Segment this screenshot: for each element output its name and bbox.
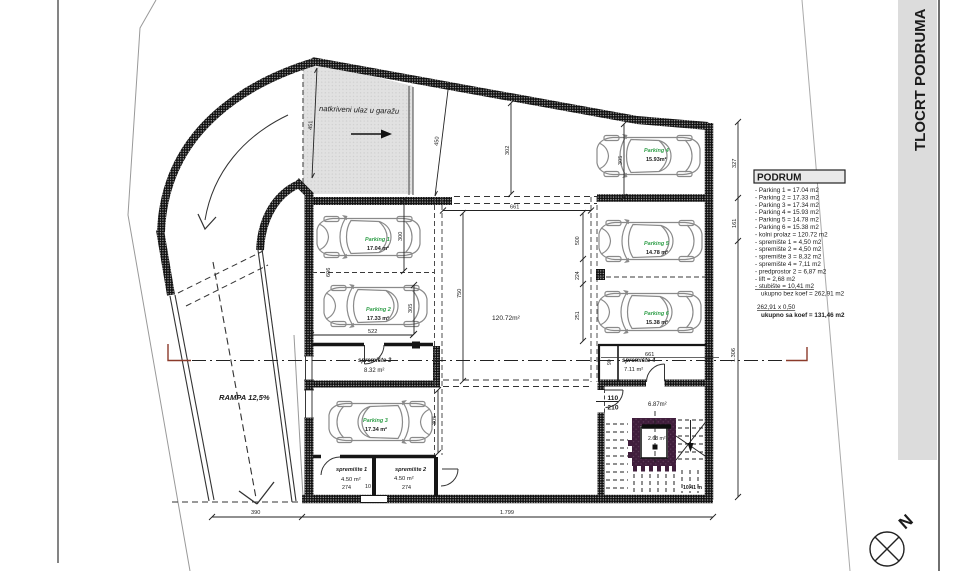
svg-text:305: 305 <box>408 304 414 313</box>
svg-text:Parking 5: Parking 5 <box>644 241 670 247</box>
svg-text:spremište 2: spremište 2 <box>395 467 427 473</box>
svg-text:17.34 m²: 17.34 m² <box>365 426 387 433</box>
svg-text:Parking 1: Parking 1 <box>365 237 390 243</box>
svg-text:PODRUM: PODRUM <box>757 173 801 184</box>
svg-text:- spremište 4 = 7,11 m2: - spremište 4 = 7,11 m2 <box>755 261 821 268</box>
svg-text:262,91 x 0,50: 262,91 x 0,50 <box>757 304 796 311</box>
svg-text:2.68 m²: 2.68 m² <box>648 436 666 442</box>
svg-text:251: 251 <box>575 311 581 320</box>
svg-text:274: 274 <box>402 485 411 491</box>
svg-text:7.11 m²: 7.11 m² <box>624 367 643 373</box>
svg-text:Parking 6: Parking 6 <box>644 311 670 317</box>
svg-text:spremište 1: spremište 1 <box>336 467 367 473</box>
svg-text:8.32 m²: 8.32 m² <box>364 368 384 374</box>
svg-text:4.50 m²: 4.50 m² <box>394 476 414 482</box>
svg-text:451: 451 <box>308 121 314 131</box>
svg-text:305: 305 <box>432 416 438 425</box>
svg-text:1.306: 1.306 <box>731 348 737 362</box>
svg-text:110: 110 <box>608 395 619 402</box>
svg-text:15.93m²: 15.93m² <box>646 156 667 163</box>
svg-text:Parking 2: Parking 2 <box>366 307 391 313</box>
svg-text:- stubište = 10,41 m2: - stubište = 10,41 m2 <box>755 283 814 290</box>
svg-text:- kolni prolaz = 120.72 m2: - kolni prolaz = 120.72 m2 <box>755 231 828 238</box>
svg-text:- spremište 3 = 8,32 m2: - spremište 3 = 8,32 m2 <box>755 254 822 261</box>
svg-text:750: 750 <box>457 289 463 298</box>
svg-text:TLOCRT PODRUMA: TLOCRT PODRUMA <box>912 8 929 151</box>
svg-text:17.04 m²: 17.04 m² <box>367 245 389 252</box>
svg-text:- lift = 2,68 m2: - lift = 2,68 m2 <box>755 276 796 283</box>
svg-text:661: 661 <box>510 205 519 211</box>
svg-text:- Parking 3 = 17.34 m2: - Parking 3 = 17.34 m2 <box>755 202 819 209</box>
svg-text:522: 522 <box>368 329 377 335</box>
svg-text:- Parking 2 = 17.33 m2: - Parking 2 = 17.33 m2 <box>755 194 819 201</box>
svg-text:161: 161 <box>732 219 738 228</box>
svg-text:4.50 m²: 4.50 m² <box>341 477 361 483</box>
svg-text:1.799: 1.799 <box>500 510 514 516</box>
svg-text:- Parking 4 = 15.93 m2: - Parking 4 = 15.93 m2 <box>755 209 819 216</box>
svg-text:300: 300 <box>398 232 404 241</box>
svg-text:ukupno sa koef = 131,46 m2: ukupno sa koef = 131,46 m2 <box>761 312 845 319</box>
svg-text:305: 305 <box>618 156 624 165</box>
svg-text:224: 224 <box>575 271 581 280</box>
svg-text:Parking 4: Parking 4 <box>644 148 669 154</box>
svg-text:- spremište 2 = 4,50 m2: - spremište 2 = 4,50 m2 <box>755 246 822 253</box>
svg-text:10: 10 <box>365 484 371 490</box>
svg-text:606: 606 <box>326 268 332 277</box>
svg-text:14.78 m²: 14.78 m² <box>646 249 668 256</box>
svg-text:661: 661 <box>645 352 654 358</box>
svg-text:120.72m²: 120.72m² <box>492 315 521 322</box>
svg-text:450: 450 <box>434 136 441 146</box>
svg-text:274: 274 <box>342 485 351 491</box>
svg-text:15.38 m²: 15.38 m² <box>646 319 668 326</box>
svg-text:- Parking 6 = 15.38 m2: - Parking 6 = 15.38 m2 <box>755 224 819 231</box>
svg-text:6.87m²: 6.87m² <box>648 402 667 408</box>
svg-text:10.41 m: 10.41 m <box>683 485 702 491</box>
svg-text:ukupno bez koef = 262,91 m2: ukupno bez koef = 262,91 m2 <box>761 291 845 298</box>
svg-text:- Parking 1 = 17.04 m2: - Parking 1 = 17.04 m2 <box>755 187 819 194</box>
svg-text:- spremište 1 = 4,50 m2: - spremište 1 = 4,50 m2 <box>755 239 822 246</box>
svg-text:500: 500 <box>575 236 581 245</box>
svg-text:- Parking 5 = 14.78 m2: - Parking 5 = 14.78 m2 <box>755 217 819 224</box>
svg-text:- predprostor 2 = 6,87 m2: - predprostor 2 = 6,87 m2 <box>755 268 827 275</box>
svg-text:17.33 m²: 17.33 m² <box>367 315 389 322</box>
svg-text:302: 302 <box>505 146 511 155</box>
svg-text:RAMPA 12,5%: RAMPA 12,5% <box>219 393 270 402</box>
svg-text:390: 390 <box>251 510 260 516</box>
svg-text:327: 327 <box>732 159 738 168</box>
svg-text:Parking 3: Parking 3 <box>363 418 388 424</box>
